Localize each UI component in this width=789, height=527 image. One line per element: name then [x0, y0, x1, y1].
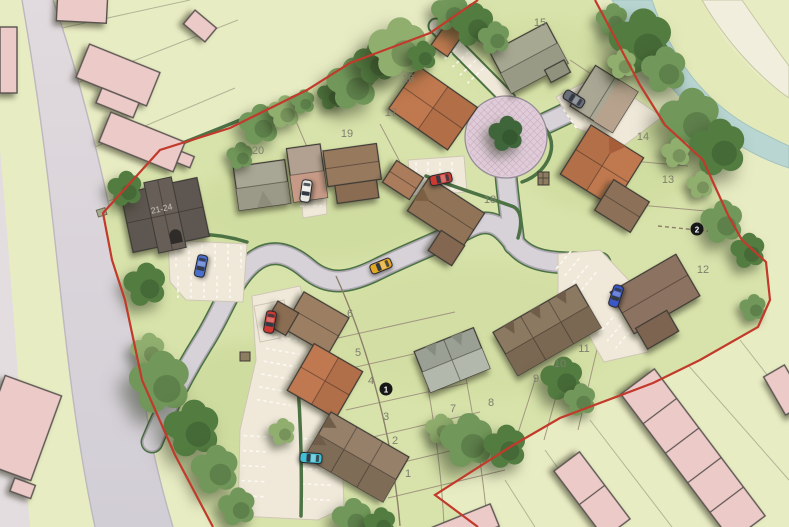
- marker-2: 2: [691, 223, 704, 236]
- bin-store: [240, 352, 250, 361]
- plot-label-4: 4: [368, 375, 374, 387]
- plot-label-3: 3: [383, 411, 389, 423]
- plot-label-19: 19: [341, 128, 353, 140]
- plot-label-13: 13: [662, 174, 674, 186]
- plot-label-17: 17: [385, 107, 397, 119]
- marker-2-label: 2: [695, 226, 700, 235]
- plot-label-7: 7: [450, 403, 456, 415]
- plot-label-20: 20: [252, 145, 264, 157]
- plot-label-6: 6: [347, 308, 353, 320]
- plot-label-12: 12: [697, 264, 709, 276]
- bin-store: [538, 172, 549, 185]
- marker-1: 1: [380, 383, 393, 396]
- plot-label-9: 9: [533, 373, 539, 385]
- car-teal: [300, 452, 323, 464]
- plot-label-16: 16: [402, 73, 414, 85]
- plot-label-15: 15: [534, 17, 546, 29]
- plot-label-11: 11: [578, 343, 589, 355]
- plot-label-1: 1: [405, 468, 411, 480]
- plot-label-2: 2: [392, 435, 398, 447]
- plot-label-18: 18: [484, 194, 496, 206]
- plot-label-10: 10: [554, 358, 566, 370]
- plot-label-5: 5: [355, 347, 361, 359]
- house-plot-20: [233, 160, 291, 211]
- plot-label-14: 14: [637, 131, 649, 143]
- site-plan: 21-24 1: [0, 0, 789, 527]
- marker-1-label: 1: [384, 386, 389, 395]
- parking-west: [168, 240, 247, 302]
- plot-label-8: 8: [488, 397, 494, 409]
